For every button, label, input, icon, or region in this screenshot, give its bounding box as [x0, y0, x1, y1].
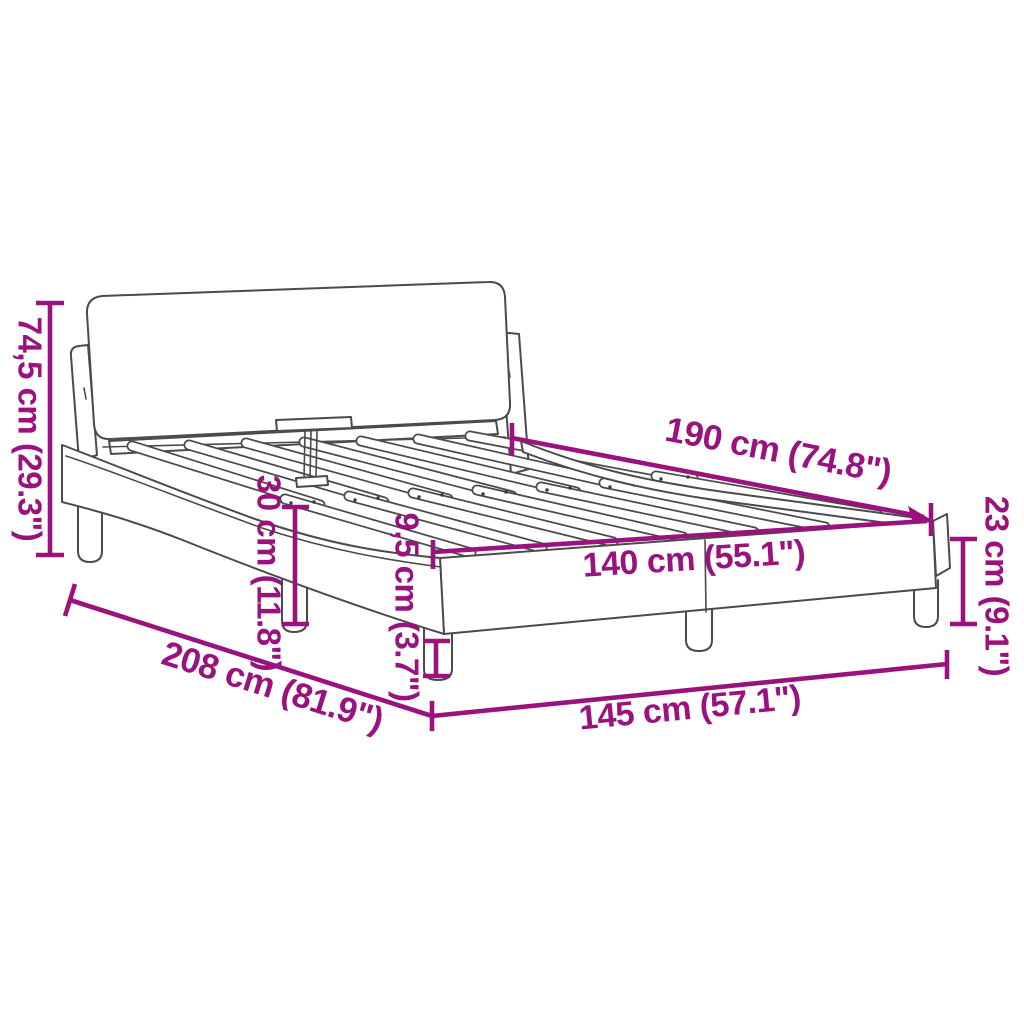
dimension-side-height: 23 cm (9.1")	[950, 496, 1015, 676]
dimension-leg-height-label: 9,5 cm (3.7")	[388, 513, 425, 702]
headboard-cushion	[87, 282, 510, 439]
bed-frame-illustration: 74,5 cm (29.3") 30 cm (11.8") 9,5 cm (3.…	[0, 0, 1024, 1024]
right-corner-return	[933, 514, 950, 576]
dimension-headboard-to-slats-label: 30 cm (11.8")	[250, 475, 287, 671]
leg-headboard-left	[78, 505, 102, 562]
leg-front-middle	[686, 606, 712, 651]
dimension-total-width-label: 145 cm (57.1")	[577, 678, 802, 737]
dimension-total-width: 145 cm (57.1")	[432, 650, 947, 738]
product-dimension-diagram: 74,5 cm (29.3") 30 cm (11.8") 9,5 cm (3.…	[0, 0, 1024, 1024]
dimension-headboard-height-label: 74,5 cm (29.3")	[11, 317, 48, 542]
dimension-side-height-label: 23 cm (9.1")	[978, 496, 1015, 676]
dimension-headboard-height: 74,5 cm (29.3")	[11, 303, 64, 555]
